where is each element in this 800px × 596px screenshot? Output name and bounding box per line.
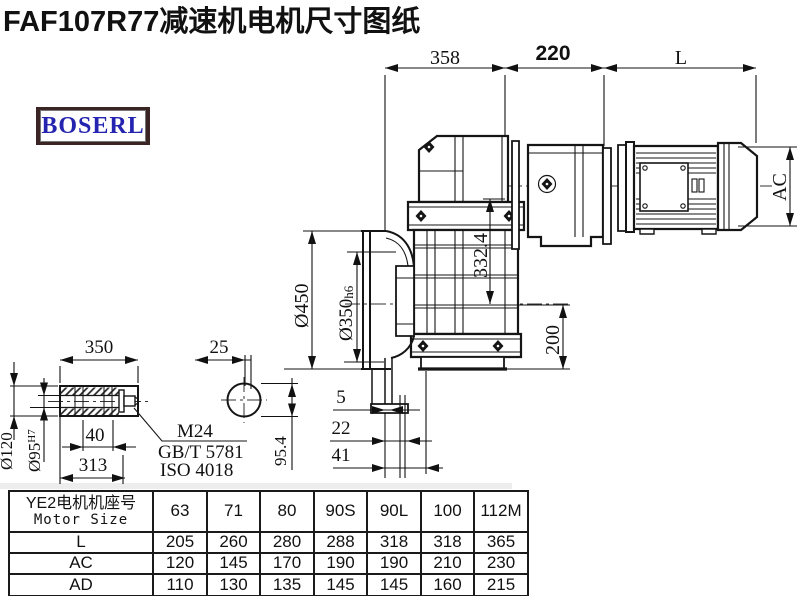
row-label-AC: AC — [9, 553, 153, 574]
table-header-motor-size: YE2电机机座号 Motor Size — [9, 491, 153, 532]
motor-size-table: YE2电机机座号 Motor Size 63 71 80 90S 90L 100… — [8, 490, 529, 596]
dim-200-label: 200 — [542, 325, 564, 355]
input-adapter — [512, 141, 626, 249]
dim-332-label: 332.4 — [470, 233, 492, 278]
table-row-AC: AC 120 145 170 190 190 210 230 — [9, 553, 528, 574]
motor-frame-window — [640, 163, 688, 211]
bolt-spec-m24: M24 — [177, 421, 213, 442]
dim-120-label: Ø120 — [0, 432, 16, 470]
drawing-page: FAF107R77减速机电机尺寸图纸 BOSERL — [0, 0, 800, 596]
cell-L-71: 260 — [207, 532, 260, 553]
cell-AD-63: 110 — [153, 574, 207, 596]
col-90L: 90L — [367, 491, 421, 532]
shaft-dims — [10, 355, 298, 484]
dim-L-label: L — [675, 47, 687, 69]
table-row-AD: AD 110 130 135 145 145 160 215 — [9, 574, 528, 596]
cell-AC-112M: 230 — [474, 553, 528, 574]
motor — [626, 142, 757, 234]
cell-L-112M: 365 — [474, 532, 528, 553]
cell-AD-90S: 145 — [314, 574, 367, 596]
gearbox-housing — [408, 136, 524, 369]
cell-AD-112M: 215 — [474, 574, 528, 596]
cell-L-90S: 288 — [314, 532, 367, 553]
dim-220-label: 220 — [535, 42, 570, 65]
dim-450-label: Ø450 — [291, 284, 313, 328]
dim-95h7-label: Ø95H7 — [25, 429, 44, 472]
cell-AC-90S: 190 — [314, 553, 367, 574]
cell-L-80: 280 — [260, 532, 314, 553]
cell-AC-100: 210 — [421, 553, 474, 574]
cell-AD-80: 135 — [260, 574, 314, 596]
cell-L-63: 205 — [153, 532, 207, 553]
col-80: 80 — [260, 491, 314, 532]
dim-22-label: 22 — [332, 418, 351, 439]
table-row-L: L 205 260 280 288 318 318 365 — [9, 532, 528, 553]
m24-bolt — [124, 396, 135, 406]
cell-L-100: 318 — [421, 532, 474, 553]
dim-AC-label: AC — [769, 173, 791, 201]
dim-25-label: 25 — [210, 337, 229, 358]
cell-AD-71: 130 — [207, 574, 260, 596]
cell-AD-100: 160 — [421, 574, 474, 596]
dim-5-label: 5 — [336, 387, 346, 408]
col-71: 71 — [207, 491, 260, 532]
cell-AD-90L: 145 — [367, 574, 421, 596]
cell-L-90L: 318 — [367, 532, 421, 553]
dim-313-label: 313 — [79, 455, 108, 476]
dim-350h6-label: Ø350h6 — [336, 285, 357, 341]
bolt-spec-iso: ISO 4018 — [160, 460, 233, 481]
col-90S: 90S — [314, 491, 367, 532]
col-63: 63 — [153, 491, 207, 532]
col-100: 100 — [421, 491, 474, 532]
terminal-detail — [692, 179, 697, 192]
output-flange — [361, 231, 414, 413]
col-112M: 112M — [474, 491, 528, 532]
cell-AC-80: 170 — [260, 553, 314, 574]
dim-40-label: 40 — [86, 425, 105, 446]
cell-AC-63: 120 — [153, 553, 207, 574]
dim-954-label: 95.4 — [271, 436, 290, 466]
row-label-AD: AD — [9, 574, 153, 596]
cell-AC-90L: 190 — [367, 553, 421, 574]
dim-350-label: 350 — [85, 337, 114, 358]
table-header-cn: YE2电机机座号 — [10, 495, 152, 513]
dim-41-label: 41 — [332, 445, 351, 466]
row-label-L: L — [9, 532, 153, 553]
cell-AC-71: 145 — [207, 553, 260, 574]
dim-358-label: 358 — [430, 47, 460, 69]
table-header-row: YE2电机机座号 Motor Size 63 71 80 90S 90L 100… — [9, 491, 528, 532]
table-header-en: Motor Size — [10, 513, 152, 528]
